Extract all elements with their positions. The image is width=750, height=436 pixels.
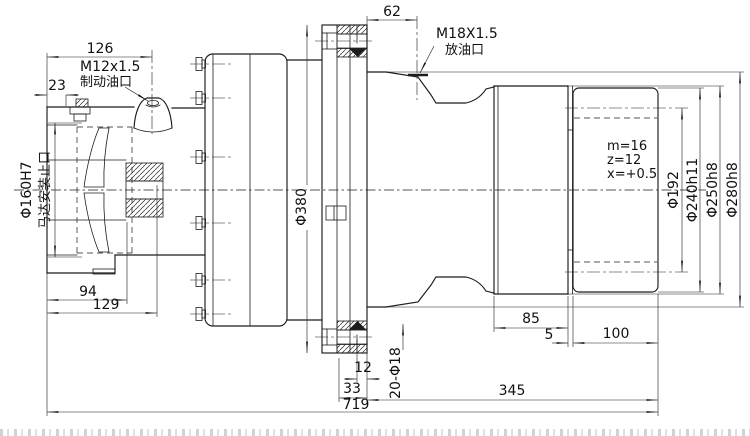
dim-33-label: 33 [343,381,361,397]
flange-bolt-section-bottom [315,321,373,353]
brake-port-callout: M12x1.5 制动油口 [80,59,148,101]
motor-spigot-hidden-bore [77,127,132,253]
cover-bolt [190,92,232,105]
dim-85: 85 [494,296,568,347]
brake-bleed-plug [70,99,90,121]
dim-126: 126 [47,41,152,57]
cover-bolt [190,274,232,287]
dim-85-label: 85 [522,311,540,327]
dim-phi380: Φ380 [294,25,310,353]
gear-shift: x=+0.5 [607,167,657,182]
gear-tip-dia: Φ240h11 [685,158,701,222]
dim-62: 62 [367,4,417,20]
dim-345: 345 [367,383,658,400]
cover-bolt [190,151,232,164]
dim-phi192: Φ192 [666,108,682,272]
dim-phi250: Φ250h8 [705,86,721,294]
brake-port-hole [148,100,159,105]
gear-teeth: z=12 [607,153,641,168]
drain-port-name: 放油口 [445,43,484,58]
dim-phi240: Φ240h11 [685,88,701,292]
brake-port-name: 制动油口 [80,75,132,90]
dim-719-label: 719 [343,397,370,413]
gear-pitch-dia: Φ192 [666,171,682,209]
bolt-circle-dia: Φ380 [294,188,310,226]
center-plug [326,206,346,220]
dim-23-label: 23 [48,78,66,94]
dim-12-label: 12 [354,360,372,376]
pilot-dia: Φ280h8 [725,162,741,218]
drain-port-callout: M18X1.5 放油口 [420,26,498,73]
dim-5-label: 5 [545,327,554,343]
dim-345-label: 345 [499,383,526,399]
dim-126-label: 126 [87,41,114,57]
cover-bolt [190,58,232,71]
brake-port-boss [134,98,172,132]
drawing-canvas: 126 23 M12x1.5 制动油口 Φ160H7 马达安装止口 94 [0,0,750,436]
centerlines [14,16,706,190]
cover-bolt [190,217,232,230]
flange-bolt-section-top [315,25,373,57]
dim-100-label: 100 [603,326,630,342]
dim-719: 719 [47,397,658,413]
gearbox-section-drawing: 126 23 M12x1.5 制动油口 Φ160H7 马达安装止口 94 [0,0,750,436]
dim-100: 100 [573,326,658,343]
motor-spigot-label: 马达安装止口 [38,151,53,229]
cut-off-text-row [0,429,750,436]
dim-phi280: Φ280h8 [725,72,741,307]
gear-data-block: m=16 z=12 x=+0.5 [607,139,657,182]
dim-129-label: 129 [93,297,120,313]
flange-holes-label: 20-Φ18 [388,347,404,399]
dim-62-label: 62 [383,4,401,20]
cover-bolt [190,308,232,321]
seat-dia: Φ250h8 [705,162,721,218]
drain-port-thread: M18X1.5 [436,26,498,42]
dim-23: 23 [34,78,79,106]
mounting-flange [315,25,373,353]
dim-5: 5 [545,296,573,347]
brake-port-thread: M12x1.5 [80,59,140,75]
flange-holes-callout: 20-Φ18 [388,324,404,399]
motor-spigot-dia: Φ160H7 [19,161,35,218]
gear-module: m=16 [607,139,647,154]
